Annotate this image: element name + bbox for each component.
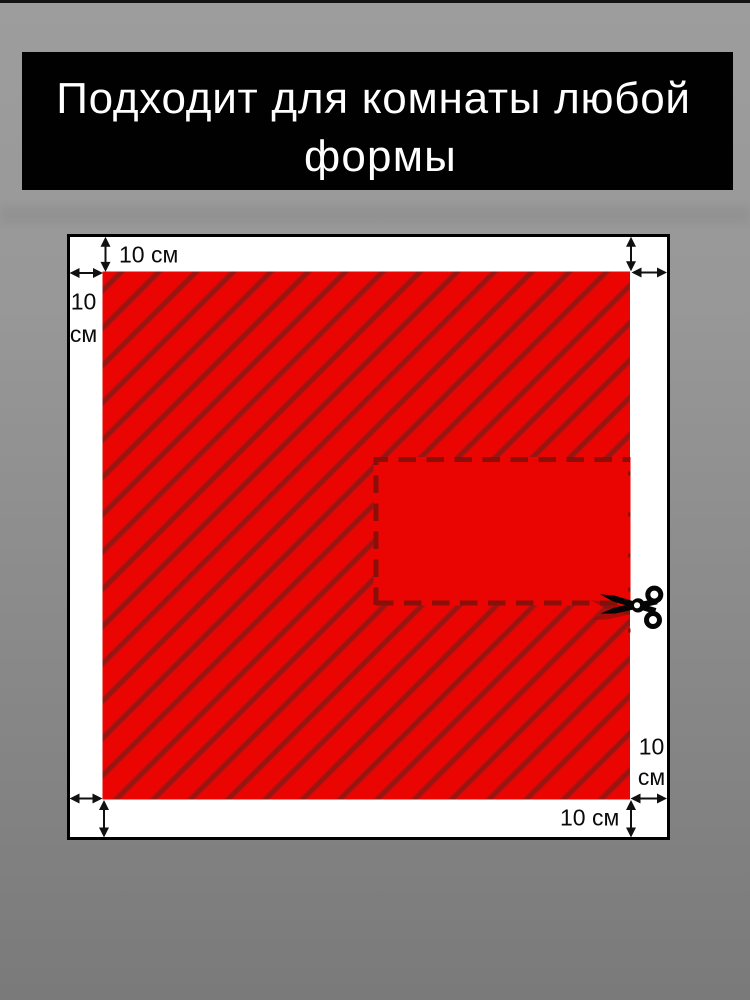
svg-text:см: см <box>638 764 665 790</box>
svg-text:10: 10 <box>71 289 97 315</box>
svg-text:см: см <box>70 321 97 347</box>
svg-text:10 см: 10 см <box>119 242 178 268</box>
svg-text:10: 10 <box>639 734 665 760</box>
svg-text:10 см: 10 см <box>560 805 619 831</box>
